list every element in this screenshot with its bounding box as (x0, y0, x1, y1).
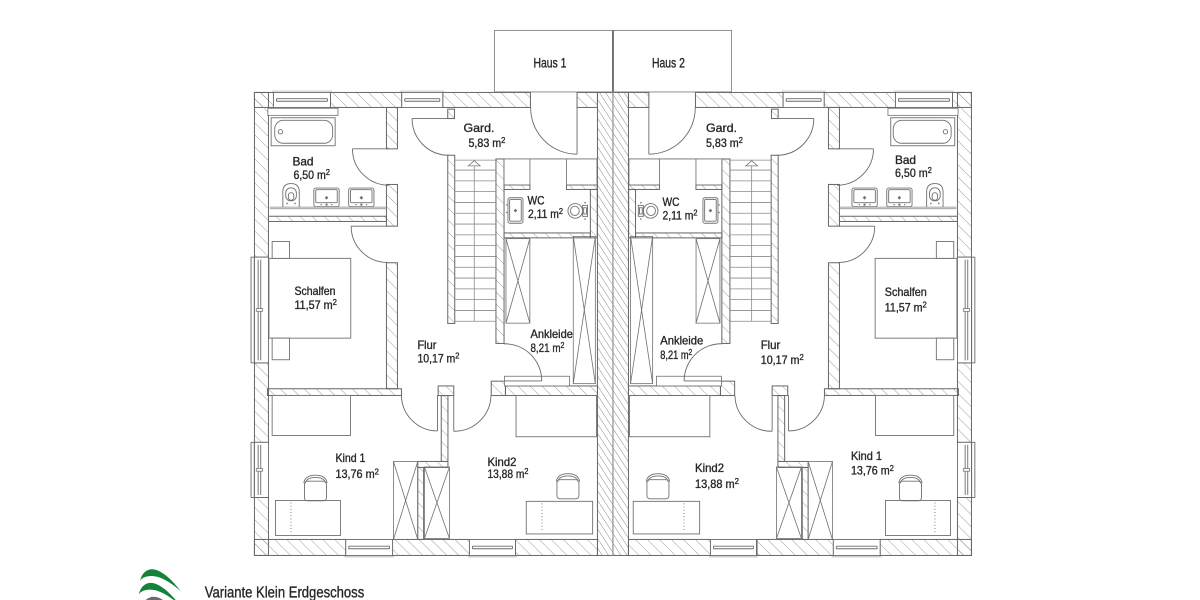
svg-text:13,76 m2: 13,76 m2 (851, 463, 894, 478)
svg-text:Kind2: Kind2 (695, 461, 724, 475)
svg-text:Kind 1: Kind 1 (851, 449, 882, 463)
svg-text:Kind 1: Kind 1 (335, 451, 365, 465)
svg-text:Haus 1: Haus 1 (533, 54, 566, 70)
svg-text:Ankleide: Ankleide (660, 333, 703, 347)
svg-text:Gard.: Gard. (463, 121, 494, 135)
svg-text:13,88 m2: 13,88 m2 (487, 466, 528, 481)
svg-text:Ankleide: Ankleide (530, 327, 573, 341)
svg-text:13,88 m2: 13,88 m2 (695, 476, 739, 491)
svg-text:WC: WC (662, 195, 679, 209)
svg-text:11,57 m2: 11,57 m2 (294, 297, 337, 312)
svg-text:13,76 m2: 13,76 m2 (335, 466, 379, 481)
svg-text:WC: WC (527, 193, 544, 207)
svg-text:Flur: Flur (761, 338, 781, 352)
svg-text:8,21 m2: 8,21 m2 (530, 340, 564, 355)
svg-text:Schalfen: Schalfen (885, 285, 927, 299)
svg-text:Flur: Flur (417, 338, 436, 352)
svg-text:2,11 m2: 2,11 m2 (662, 208, 697, 223)
svg-text:5,83 m2: 5,83 m2 (706, 135, 743, 150)
svg-text:10,17 m2: 10,17 m2 (761, 352, 804, 367)
svg-text:Bad: Bad (292, 154, 313, 168)
svg-text:Schalfen: Schalfen (294, 284, 335, 298)
svg-text:11,57 m2: 11,57 m2 (885, 300, 927, 315)
svg-text:6,50 m2: 6,50 m2 (895, 165, 932, 180)
svg-text:5,83 m2: 5,83 m2 (468, 135, 505, 150)
svg-text:2,11 m2: 2,11 m2 (528, 206, 563, 221)
svg-text:Haus 2: Haus 2 (652, 54, 685, 70)
svg-text:Gard.: Gard. (706, 121, 737, 135)
svg-text:10,17 m2: 10,17 m2 (417, 351, 459, 366)
svg-text:6,50 m2: 6,50 m2 (293, 167, 330, 182)
svg-text:Variante Klein Erdgeschoss: Variante Klein Erdgeschoss (205, 585, 365, 600)
svg-text:8,21 m2: 8,21 m2 (660, 347, 692, 362)
